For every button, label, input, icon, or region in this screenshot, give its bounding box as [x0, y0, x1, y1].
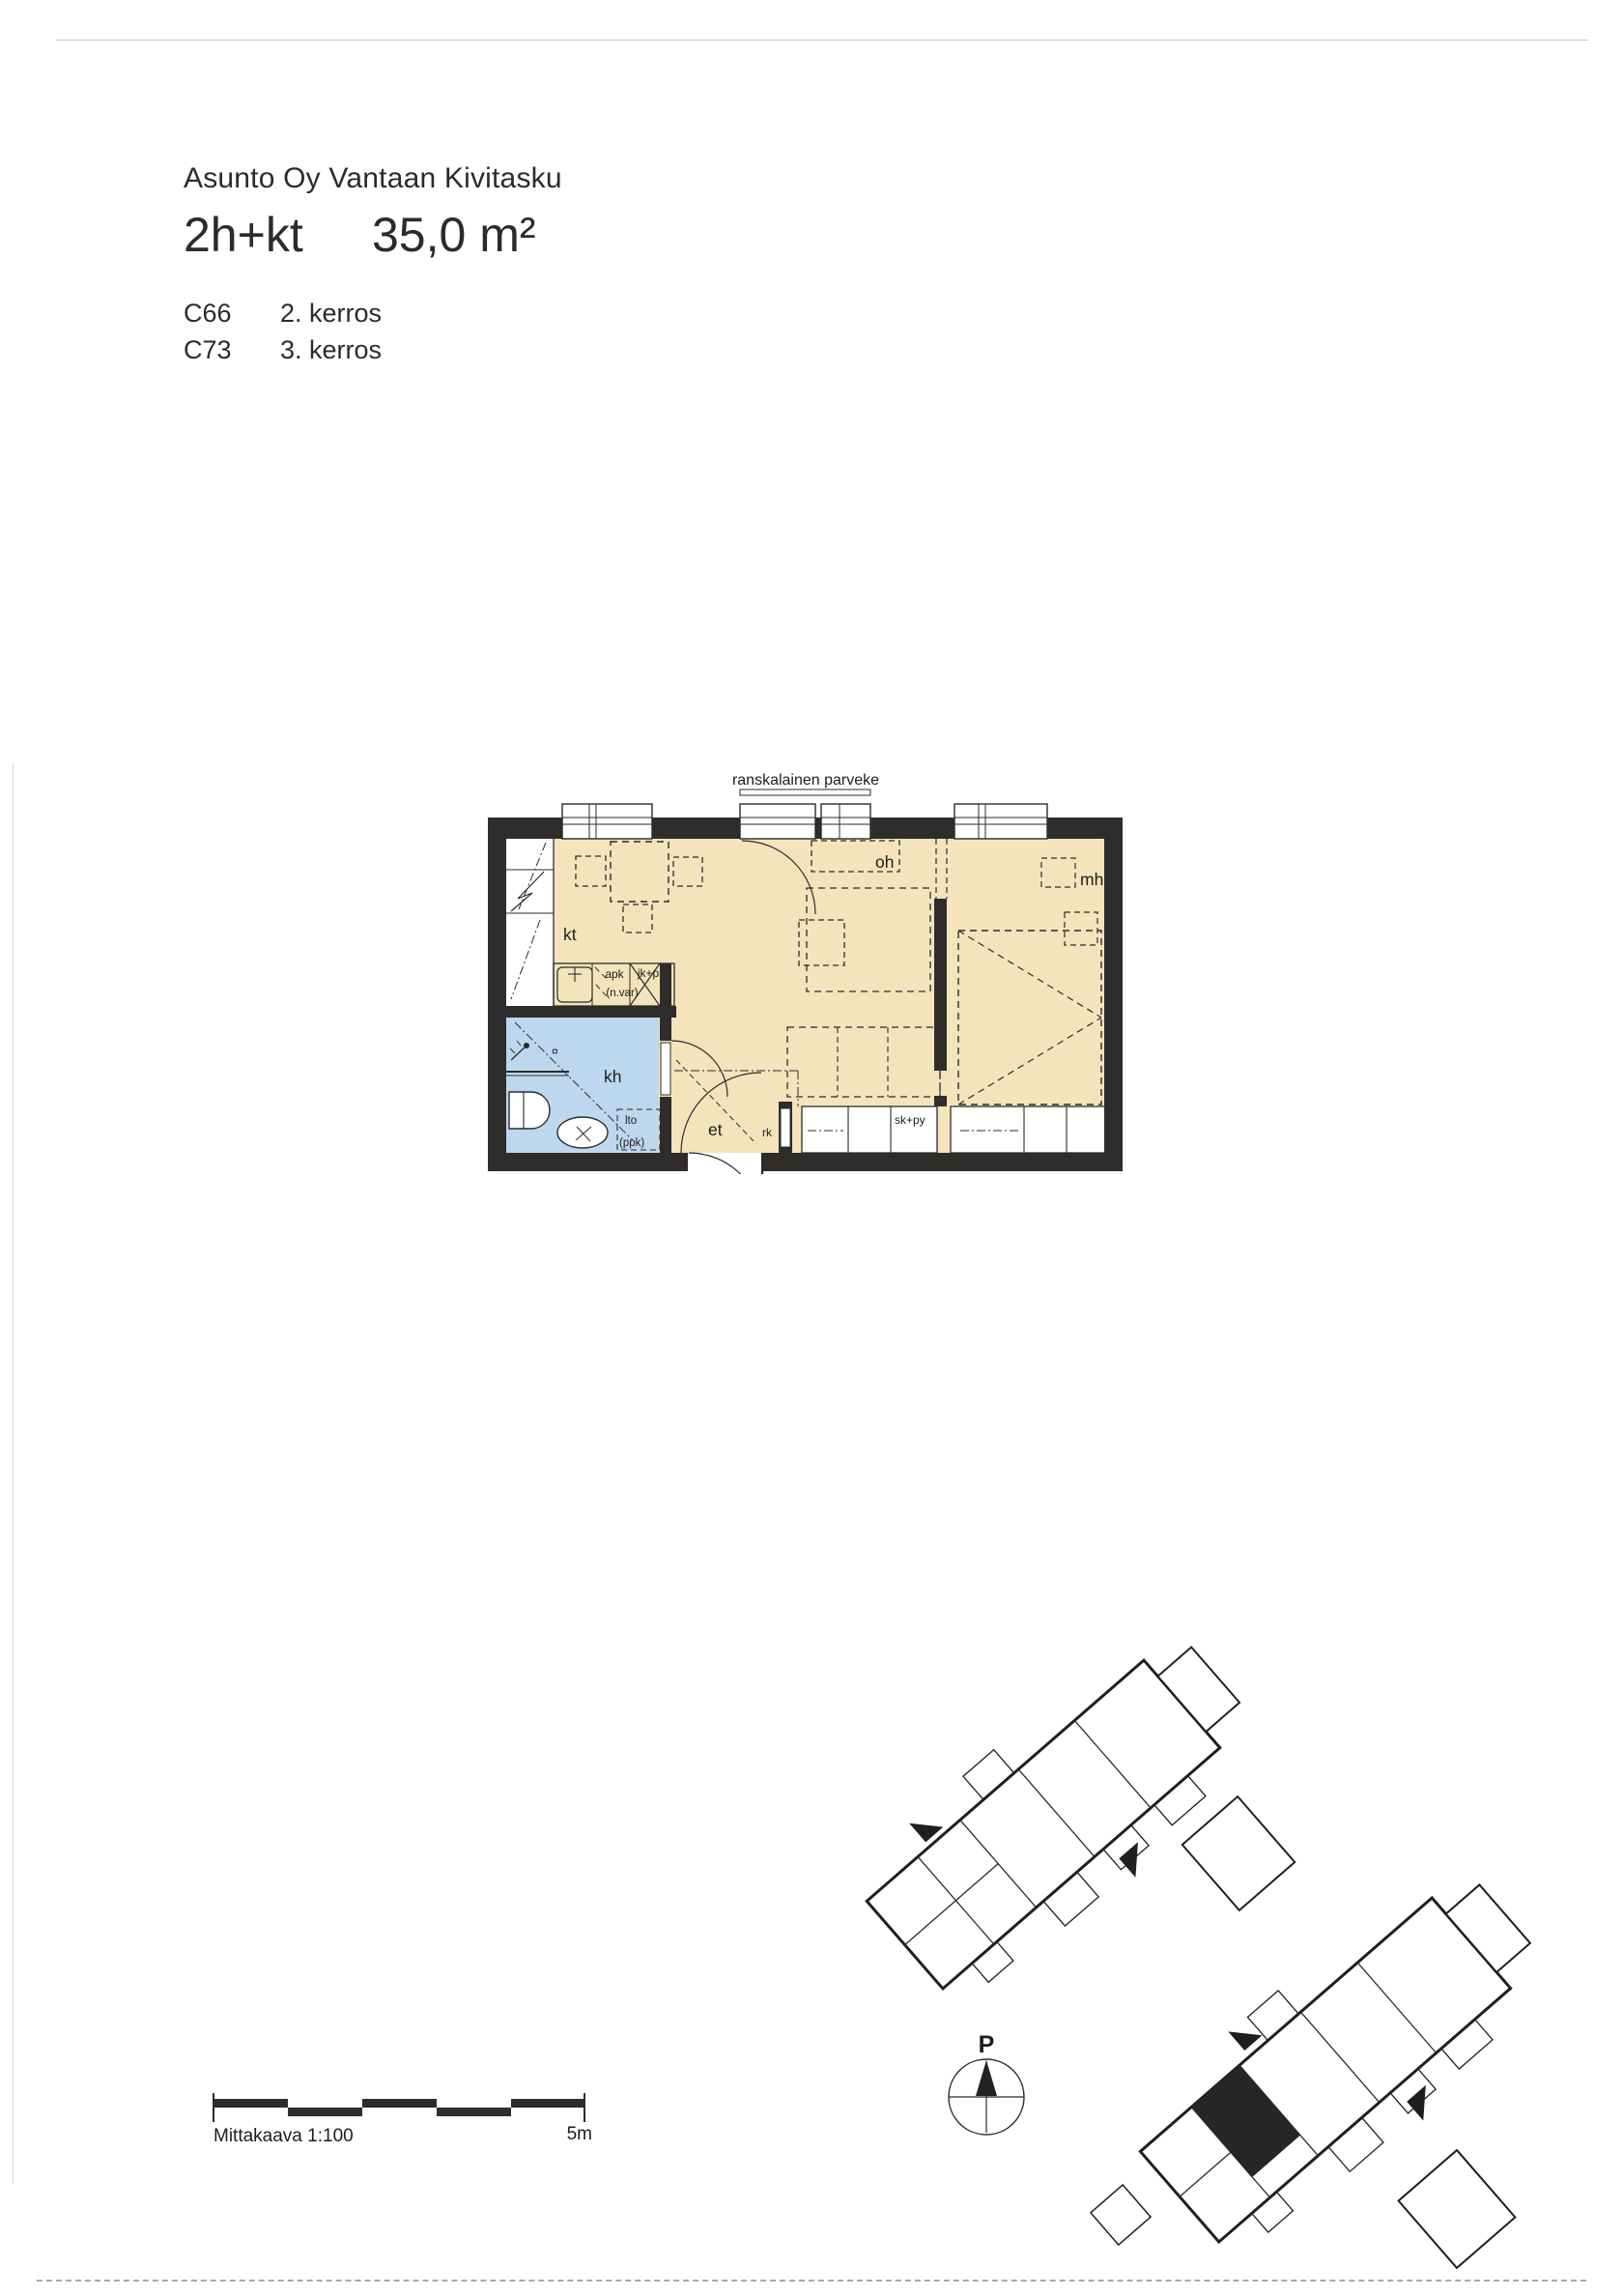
dishwasher-label: apk — [605, 967, 624, 981]
pantry-label: rk — [762, 1126, 773, 1139]
outbuilding-lower — [1399, 2150, 1516, 2268]
scan-edge-top — [56, 40, 1588, 41]
toilet — [509, 1092, 550, 1129]
drain-symbol: ¤ — [552, 1045, 558, 1058]
north-needle — [976, 2060, 997, 2096]
scan-edge-left — [13, 763, 14, 2184]
apartment-type: 2h+kt — [184, 207, 303, 263]
front-door — [688, 1153, 763, 1174]
floor-plan: ranskalainen parveke — [486, 768, 1124, 1174]
bedroom-label: mh — [1080, 870, 1103, 889]
unit-code-1: C66 — [184, 299, 232, 329]
scan-edge-bottom — [37, 2280, 1586, 2282]
wardrobes: sk+py — [802, 1106, 1105, 1153]
kitchen-window — [562, 804, 652, 839]
scale-label: Mittakaava 1:100 — [214, 2126, 354, 2146]
living-window — [821, 804, 870, 839]
floor-plan-page: Asunto Oy Vantaan Kivitasku 2h+kt 35,0 m… — [0, 0, 1623, 2296]
unit-code-2: C73 — [184, 335, 232, 365]
bathroom-label: kh — [604, 1067, 621, 1086]
apartment-area: 35,0 m² — [372, 207, 536, 263]
heat-unit-label: lto — [625, 1115, 637, 1127]
unit-floor-1: 2. kerros — [280, 299, 382, 329]
compass: P — [949, 2031, 1024, 2135]
bedroom-window — [954, 804, 1047, 839]
outbuilding-upper — [1182, 1796, 1295, 1910]
reserve-label: (n.var) — [606, 988, 638, 999]
balcony-label: ranskalainen parveke — [732, 772, 879, 789]
kitchen-label: kt — [563, 925, 577, 944]
pantry-door — [781, 1108, 790, 1147]
living-label: oh — [875, 852, 894, 872]
north-label: P — [979, 2031, 995, 2058]
entrance-marker — [909, 1808, 943, 1842]
balcony-door-window — [740, 804, 815, 839]
bathroom-door-leaf — [661, 1043, 670, 1095]
outbuilding-small — [1091, 2185, 1151, 2245]
company-name: Asunto Oy Vantaan Kivitasku — [184, 162, 562, 195]
site-plan: P — [850, 1575, 1546, 2271]
scale-bar: Mittakaava 1:100 5m — [174, 2068, 638, 2165]
unit-floor-2: 3. kerros — [280, 335, 382, 365]
scale-max-label: 5m — [567, 2124, 592, 2144]
french-balcony-rail — [740, 789, 870, 795]
entry-label: et — [708, 1120, 723, 1139]
wardrobe-label: sk+py — [895, 1113, 925, 1127]
